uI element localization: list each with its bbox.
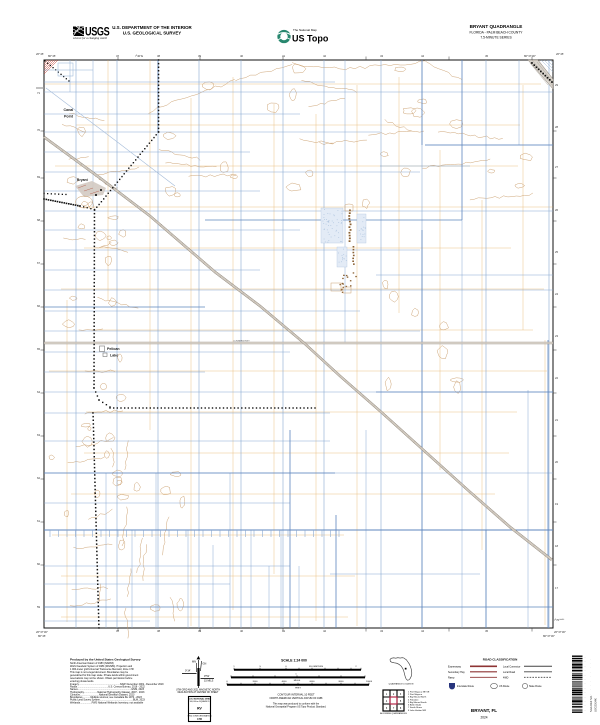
svg-text:FLORIDA - PALM BEACH COUNTY: FLORIDA - PALM BEACH COUNTY [470,31,524,35]
svg-text:44: 44 [421,54,425,58]
svg-text:24: 24 [555,292,559,296]
svg-text:21: 21 [555,418,559,422]
svg-text:37: 37 [116,629,120,633]
svg-text:Point: Point [64,115,74,119]
svg-text:66: 66 [37,304,41,308]
svg-text:Secondary Hwy: Secondary Hwy [448,671,466,674]
svg-text:42: 42 [323,629,327,633]
svg-text:U.S. GEOLOGICAL SURVEY: U.S. GEOLOGICAL SURVEY [123,31,181,36]
svg-text:science for a changing world: science for a changing world [73,36,107,40]
svg-text:MN: MN [192,661,196,664]
svg-text:CONNERS HWY: CONNERS HWY [233,341,250,343]
svg-text:71: 71 [37,91,41,95]
svg-text:RV: RV [197,707,202,711]
svg-text:8000: 8000 [339,681,345,683]
svg-text:U.S. DEPARTMENT OF THE INTERIO: U.S. DEPARTMENT OF THE INTERIOR [112,25,192,30]
svg-text:USGSX24K: USGSX24K [594,698,598,712]
svg-text:43: 43 [380,54,384,58]
svg-text:65: 65 [37,347,41,351]
svg-text:Produced by the United States: Produced by the United States Geological… [70,658,141,662]
svg-text:Bryant: Bryant [77,178,89,182]
svg-text:43: 43 [380,629,384,633]
svg-text:17R: 17R [197,717,202,721]
svg-text:41: 41 [282,54,286,58]
svg-text:National Geospatial Program US: National Geospatial Program US Topo Prod… [266,705,327,708]
svg-text:ROAD CLASSIFICATION: ROAD CLASSIFICATION [483,658,518,662]
svg-text:Interstate Route: Interstate Route [457,685,475,688]
svg-text:State Route: State Route [529,685,542,688]
svg-text:63: 63 [37,433,41,437]
svg-text:GN: GN [203,663,207,666]
svg-text:70: 70 [37,128,41,132]
svg-text:¹⁵40''E: ¹⁵40''E [135,54,143,58]
svg-text:NGA REF NO.: NGA REF NO. [589,695,593,712]
svg-text:26°37'30'': 26°37'30'' [554,630,567,634]
svg-text:80°45': 80°45' [48,54,56,58]
svg-text:The National Map: The National Map [293,28,317,32]
svg-text:40: 40 [240,629,244,633]
svg-text:59: 59 [37,605,41,609]
svg-text:42: 42 [323,54,327,58]
svg-text:BRYANT, FL: BRYANT, FL [471,708,497,713]
svg-text:6000: 6000 [310,681,316,683]
svg-text:29: 29 [555,83,559,87]
svg-text:5 Big Mound South: 5 Big Mound South [408,701,427,704]
svg-text:DECLINATION AT CENTER OF SHEET: DECLINATION AT CENTER OF SHEET [178,691,219,694]
svg-text:¹⁵70⁰⁰⁰ⁱ⁶: ¹⁵70⁰⁰⁰ⁱ⁶ [554,617,564,622]
svg-text:80°37'30'': 80°37'30'' [543,634,556,638]
svg-text:19: 19 [555,502,559,506]
svg-text:UTM GRID AND 2021 MAGNETIC NOR: UTM GRID AND 2021 MAGNETIC NORTH [176,689,220,692]
svg-text:15 MILS: 15 MILS [204,680,214,683]
svg-text:80°45': 80°45' [38,634,46,638]
svg-text:2024: 2024 [480,716,487,720]
svg-text:37: 37 [116,54,120,58]
svg-text:20: 20 [555,460,559,464]
svg-text:4WD: 4WD [503,676,509,679]
svg-text:NORTH AMERICAN VERTICAL DATUM: NORTH AMERICAN VERTICAL DATUM OF 1988 [270,697,323,700]
svg-text:MILES: MILES [294,680,301,682]
svg-text:0°51': 0°51' [204,675,210,678]
svg-text:KILOMETERS: KILOMETERS [309,666,324,668]
svg-text:61: 61 [37,519,41,523]
svg-text:68: 68 [37,218,41,222]
svg-text:41: 41 [282,629,286,633]
svg-text:28: 28 [555,125,559,129]
svg-text:39: 39 [198,54,202,58]
svg-text:25: 25 [555,250,559,254]
svg-text:2 Port Mayaca: 2 Port Mayaca [408,693,423,696]
svg-text:22: 22 [555,376,559,380]
svg-text:80°37'30'': 80°37'30'' [524,54,537,58]
svg-text:39: 39 [198,629,202,633]
svg-text:64: 64 [37,390,41,394]
svg-text:38: 38 [157,629,161,633]
svg-text:Lake: Lake [110,354,118,358]
svg-text:17: 17 [555,586,559,590]
svg-text:45: 45 [485,629,489,633]
svg-text:38: 38 [157,54,161,58]
svg-text:8 Lake Harbor NW: 8 Lake Harbor NW [408,709,427,712]
svg-text:4000: 4000 [282,681,288,683]
svg-text:45: 45 [485,54,489,58]
svg-text:Ramp: Ramp [448,676,455,679]
svg-text:US Route: US Route [499,685,510,688]
svg-text:23: 23 [555,334,559,338]
svg-text:26°45': 26°45' [36,52,44,56]
svg-text:40: 40 [240,54,244,58]
svg-text:Wetlands.................FWS N: Wetlands.................FWS National We… [70,701,144,704]
svg-text:US Topo: US Topo [292,34,329,44]
svg-text:Pelican: Pelican [107,347,120,351]
svg-text:10000: 10000 [366,681,373,683]
svg-text:100,000-m SQUARE ID: 100,000-m SQUARE ID [190,700,211,703]
svg-text:Canal: Canal [64,108,74,112]
svg-text:BRYANT QUADRANGLE: BRYANT QUADRANGLE [470,24,523,29]
svg-text:FEET: FEET [295,688,301,690]
svg-text:3 Big Mound North: 3 Big Mound North [408,696,427,699]
svg-text:ADJOINING QUADRANGLES: ADJOINING QUADRANGLES [380,712,407,715]
svg-text:27: 27 [555,165,559,169]
svg-text:QUADRANGLE LOCATION: QUADRANGLE LOCATION [389,683,414,686]
svg-text:SCALE 1:24 000: SCALE 1:24 000 [281,659,307,663]
svg-text:18: 18 [555,544,559,548]
svg-text:1 Port Mayaca NE SE: 1 Port Mayaca NE SE [408,691,430,694]
svg-text:67: 67 [37,261,41,265]
svg-text:26°45': 26°45' [556,52,564,56]
svg-text:62: 62 [37,476,41,480]
svg-text:60: 60 [37,562,41,566]
svg-text:0°14': 0°14' [185,670,191,673]
svg-text:7.5-MINUTE SERIES: 7.5-MINUTE SERIES [480,36,512,40]
svg-text:Local Connector: Local Connector [503,665,521,668]
svg-text:44: 44 [421,629,425,633]
svg-text:2000: 2000 [253,681,259,683]
svg-text:CONTOUR INTERVAL 10 FEET: CONTOUR INTERVAL 10 FEET [277,693,315,697]
svg-text:Expressway: Expressway [448,665,462,668]
svg-text:69: 69 [37,175,41,179]
svg-text:26: 26 [555,208,559,212]
svg-text:Local Road: Local Road [503,671,516,674]
svg-text:7 South Shore: 7 South Shore [408,706,423,709]
